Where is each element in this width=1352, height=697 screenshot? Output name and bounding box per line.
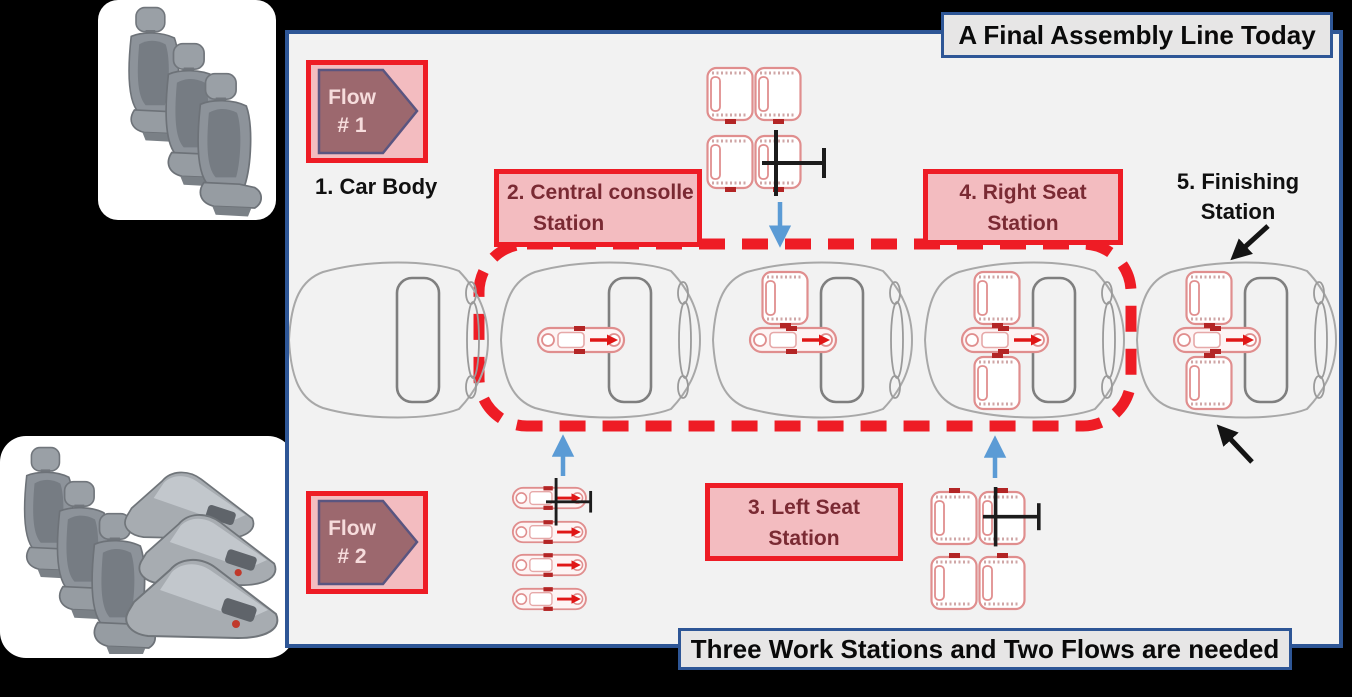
station-4-label-line1: 4. Right Seat <box>928 177 1118 208</box>
station-5-label: 5. Finishing Station <box>1166 167 1310 227</box>
flow-2-label: Flow <box>328 515 376 543</box>
slide-footer-banner: Three Work Stations and Two Flows are ne… <box>678 628 1292 670</box>
station-3-label-line1: 3. Left Seat <box>710 492 898 523</box>
seats-and-consoles-photo-bottom <box>2 440 292 654</box>
station-2-label-line1: 2. Central consolle <box>507 177 697 208</box>
station-2-box: 2. Central consolle Station <box>494 169 702 247</box>
station-3-box: 3. Left Seat Station <box>705 483 903 561</box>
seat-supply-bottom <box>932 487 1039 609</box>
flow-1-banner: Flow # 1 <box>306 60 428 163</box>
flow-1-label: Flow <box>328 84 376 112</box>
finishing-pointer-arrow-top-icon <box>1235 226 1268 256</box>
slide-title: A Final Assembly Line Today <box>941 12 1333 58</box>
station-4-label-line2: Station <box>928 208 1118 239</box>
flow-2-number: # 2 <box>337 543 366 571</box>
flow-2-banner: Flow # 2 <box>306 491 428 594</box>
station-5-label-line1: 5. Finishing <box>1166 167 1310 197</box>
station-1-label: 1. Car Body <box>315 174 437 200</box>
console-supply-bottom <box>513 478 591 611</box>
right-seat-icon-car5 <box>1187 353 1232 409</box>
console-icon-car3 <box>750 326 836 354</box>
right-seat-icon-car4 <box>975 353 1020 409</box>
car-body-outline-1 <box>289 263 488 418</box>
seat-supply-top <box>708 68 825 196</box>
station-5-label-line2: Station <box>1166 197 1310 227</box>
flow-1-number: # 1 <box>337 112 366 140</box>
car-seat-photo <box>198 74 261 217</box>
console-icon-car4 <box>962 326 1048 354</box>
left-seat-icon-car3 <box>763 272 808 328</box>
finishing-pointer-arrow-bottom-icon <box>1221 429 1252 462</box>
console-icon-car5 <box>1174 326 1260 354</box>
car-seats-photo-top <box>100 2 275 218</box>
station-2-label-line2: Station <box>507 208 697 239</box>
left-seat-icon-car5 <box>1187 272 1232 328</box>
left-seat-icon-car4 <box>975 272 1020 328</box>
handling-tool-icon-console <box>546 478 591 526</box>
slide-canvas: Flow # 1 Flow # 2 1. Car Body 2. Central… <box>0 0 1352 697</box>
station-3-label-line2: Station <box>710 523 898 554</box>
station-4-box: 4. Right Seat Station <box>923 169 1123 245</box>
console-icon-car2 <box>538 326 624 354</box>
